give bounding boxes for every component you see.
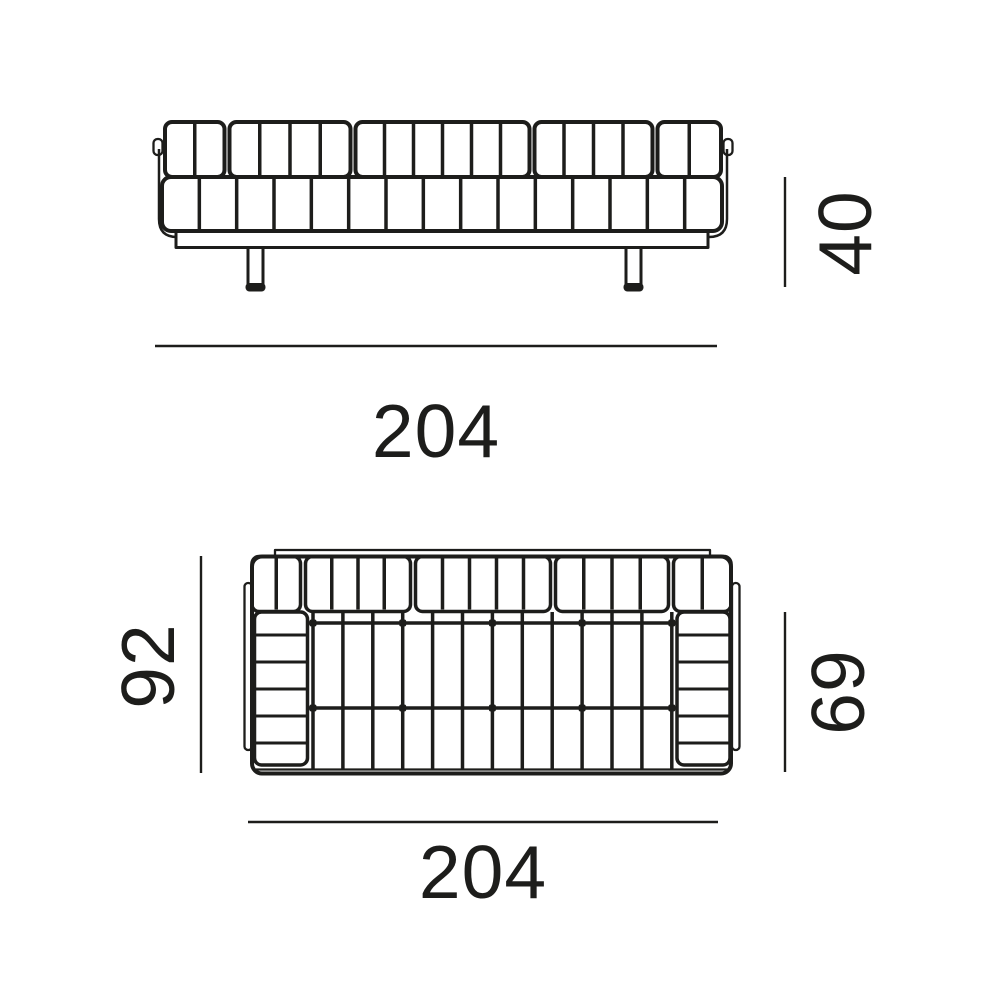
front-elevation-view: 204 40 bbox=[154, 122, 888, 473]
plan-backrest-cushions bbox=[252, 557, 731, 612]
front-height-dimension-label: 40 bbox=[803, 190, 887, 275]
plan-width-dimension-label: 204 bbox=[419, 830, 547, 914]
seat-cushion-row bbox=[162, 177, 722, 231]
plan-depth-dimension-label: 92 bbox=[106, 623, 190, 708]
base-rail bbox=[176, 231, 708, 248]
plan-seat-depth-dimension-label: 69 bbox=[796, 649, 880, 734]
right-frame-bracket bbox=[709, 149, 727, 237]
left-leg-foot bbox=[246, 283, 266, 292]
front-width-dimension-label: 204 bbox=[372, 389, 500, 473]
cushion bbox=[416, 557, 551, 612]
plan-seat-channels bbox=[310, 612, 676, 770]
back-cushion-row bbox=[165, 122, 721, 177]
sofa-dimension-drawing: 204 40 92 69 204 bbox=[0, 0, 1000, 1000]
right-leg-foot bbox=[624, 283, 644, 292]
left-side-frame-strip bbox=[245, 583, 253, 750]
seat-channel-lines bbox=[199, 179, 684, 229]
left-leg bbox=[248, 248, 263, 286]
right-side-frame-strip bbox=[732, 583, 740, 750]
plan-view: 92 69 204 bbox=[106, 550, 880, 914]
legs bbox=[246, 248, 644, 292]
right-leg bbox=[626, 248, 641, 286]
